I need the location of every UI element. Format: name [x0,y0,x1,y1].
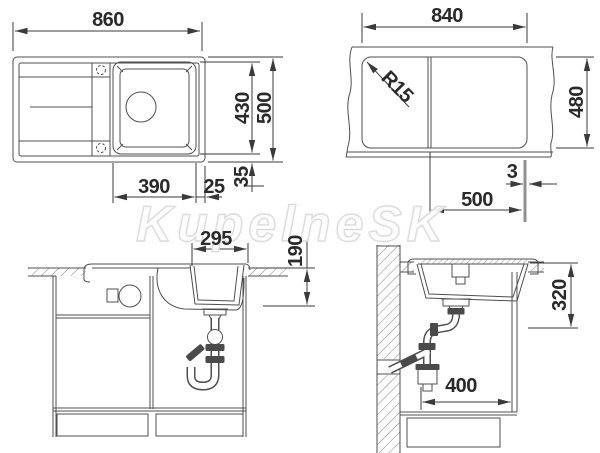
dim-label-under-counter-clearance: 320 [550,279,570,311]
shutoff-lever [185,344,205,362]
dim-label-min-cabinet-width: 400 [445,376,477,396]
tap-hole-top [97,66,106,75]
sink-technical-drawing: KupelneSK 860 500 430 35 390 25 840 480 … [0,0,600,453]
front-section-drawing [28,264,288,437]
dim-label-bowl-width: 390 [138,177,170,197]
tap-hole-bottom [97,144,106,153]
dim-label-bowl-depth: 430 [233,92,253,124]
cutout-view-drawing [346,47,554,157]
dim-label-overall-depth: 500 [255,92,275,124]
cabinet-knob-square [107,289,118,302]
dim-label-cutout-width: 840 [431,6,463,26]
front-section-trap [185,318,224,386]
dim-label-bowl-top-width: 295 [200,229,232,249]
side-section-drawing [377,245,544,453]
dim-label-bowl-right-offset: 25 [203,177,224,197]
wall-hatch [377,245,400,453]
dim-label-divider-thickness: 3 [507,162,518,182]
dim-label-bowl-section-width: 500 [461,190,493,210]
dim-label-rim-margin: 35 [232,166,252,187]
dim-label-cutout-depth: 480 [567,86,587,118]
dim-label-bowl-height: 190 [286,235,306,267]
dim-label-overall-width: 860 [92,10,124,30]
top-view-drawing [13,57,205,162]
cabinet-knob-circle [119,285,141,307]
drain-hole [126,92,156,122]
